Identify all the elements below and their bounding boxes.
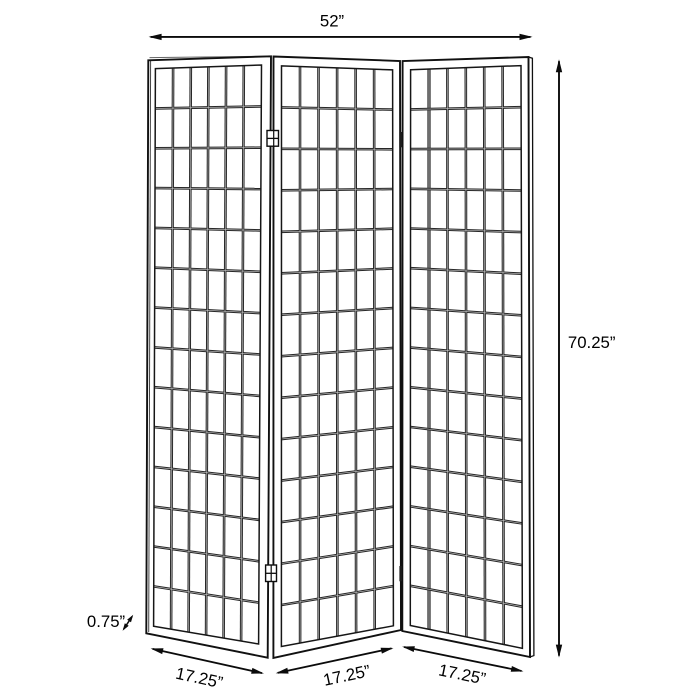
- svg-text:52”: 52”: [320, 11, 344, 30]
- svg-text:70.25”: 70.25”: [568, 333, 616, 352]
- svg-text:0.75”: 0.75”: [87, 612, 125, 631]
